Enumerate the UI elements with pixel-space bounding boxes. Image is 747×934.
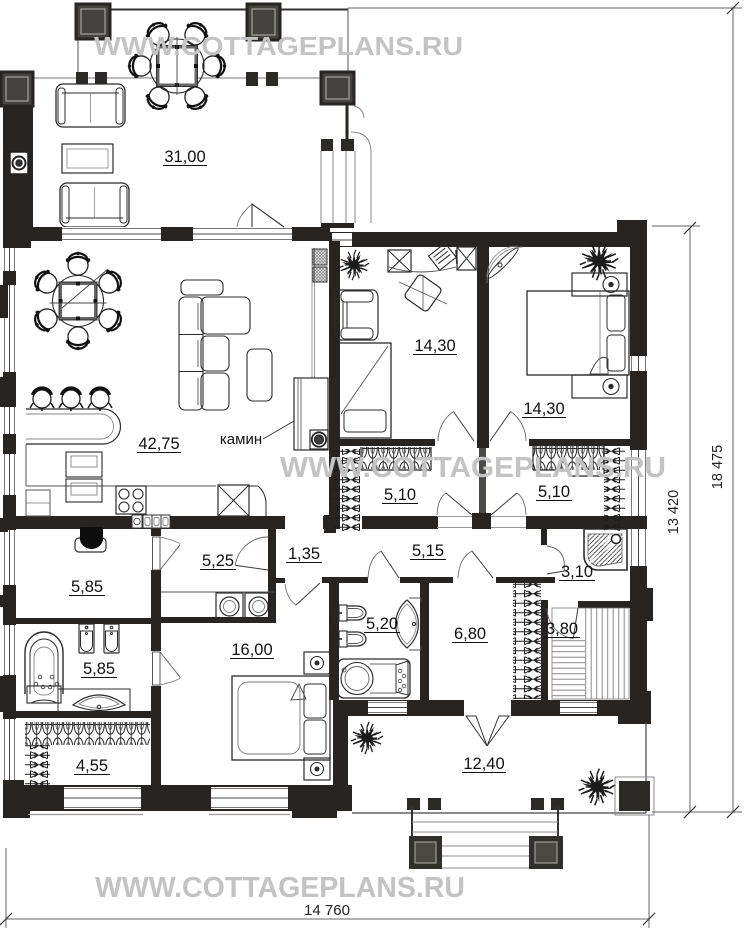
svg-text:5,10: 5,10	[538, 483, 570, 501]
svg-text:камин: камин	[220, 431, 262, 448]
svg-text:WWW.COTTAGEPLANS.RU: WWW.COTTAGEPLANS.RU	[95, 872, 465, 904]
svg-text:1,35: 1,35	[288, 545, 320, 563]
svg-text:3,80: 3,80	[546, 620, 578, 638]
svg-text:5,85: 5,85	[83, 660, 115, 678]
svg-text:3,10: 3,10	[561, 563, 593, 581]
svg-text:4,55: 4,55	[76, 757, 108, 775]
svg-text:5,25: 5,25	[202, 552, 234, 570]
svg-text:5,10: 5,10	[384, 486, 416, 504]
svg-text:WWW.COTTAGEPLANS.RU: WWW.COTTAGEPLANS.RU	[94, 31, 463, 61]
svg-text:18 475: 18 475	[710, 445, 726, 489]
svg-text:42,75: 42,75	[138, 435, 179, 453]
svg-text:5,15: 5,15	[412, 542, 444, 560]
svg-text:31,00: 31,00	[164, 148, 205, 166]
svg-text:14 760: 14 760	[304, 902, 350, 919]
svg-text:13 420: 13 420	[666, 490, 682, 534]
svg-text:14,30: 14,30	[523, 400, 564, 418]
svg-text:5,85: 5,85	[71, 578, 103, 596]
svg-text:WWW.COTTAGEPLANS.RU: WWW.COTTAGEPLANS.RU	[280, 452, 666, 484]
svg-text:16,00: 16,00	[231, 641, 272, 659]
svg-text:5,20: 5,20	[366, 615, 398, 633]
svg-text:14,30: 14,30	[414, 337, 455, 355]
svg-text:12,40: 12,40	[463, 755, 504, 773]
svg-text:6,80: 6,80	[454, 625, 486, 643]
